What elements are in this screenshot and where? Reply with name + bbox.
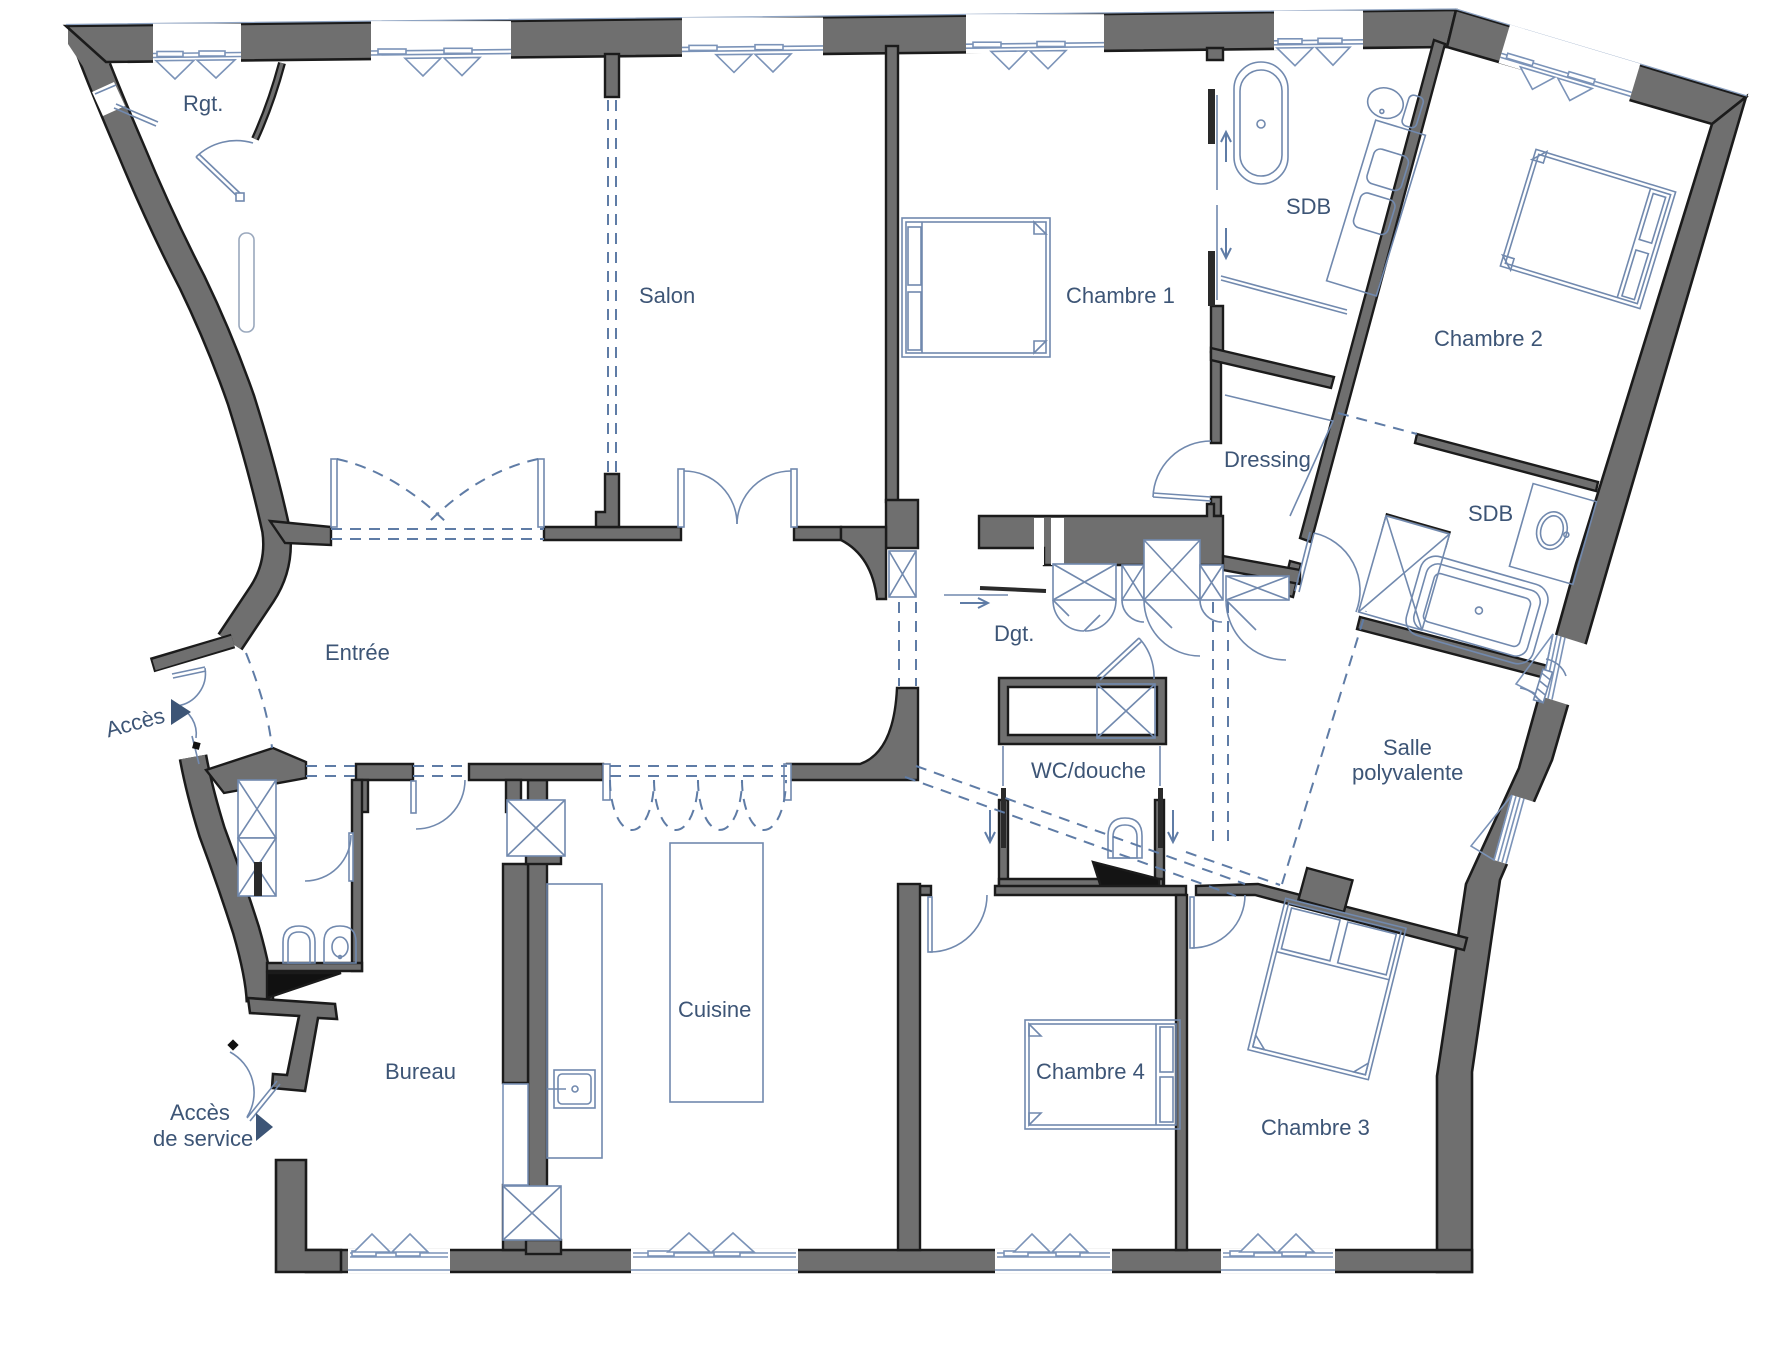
svg-text:Chambre 2: Chambre 2	[1434, 326, 1543, 351]
svg-text:WC/douche: WC/douche	[1031, 758, 1146, 783]
svg-text:SDB: SDB	[1286, 194, 1331, 219]
svg-text:Rgt.: Rgt.	[183, 91, 223, 116]
svg-text:Cuisine: Cuisine	[678, 997, 751, 1022]
svg-text:polyvalente: polyvalente	[1352, 760, 1463, 785]
svg-text:SDB: SDB	[1468, 501, 1513, 526]
svg-text:de service: de service	[153, 1126, 253, 1151]
svg-text:Chambre 4: Chambre 4	[1036, 1059, 1145, 1084]
svg-text:Chambre 3: Chambre 3	[1261, 1115, 1370, 1140]
svg-text:Salle: Salle	[1383, 735, 1432, 760]
svg-text:Salon: Salon	[639, 283, 695, 308]
svg-text:Dgt.: Dgt.	[994, 621, 1034, 646]
svg-text:Bureau: Bureau	[385, 1059, 456, 1084]
svg-text:Entrée: Entrée	[325, 640, 390, 665]
svg-text:Dressing: Dressing	[1224, 447, 1311, 472]
svg-text:Accès: Accès	[170, 1100, 230, 1125]
svg-text:Chambre 1: Chambre 1	[1066, 283, 1175, 308]
